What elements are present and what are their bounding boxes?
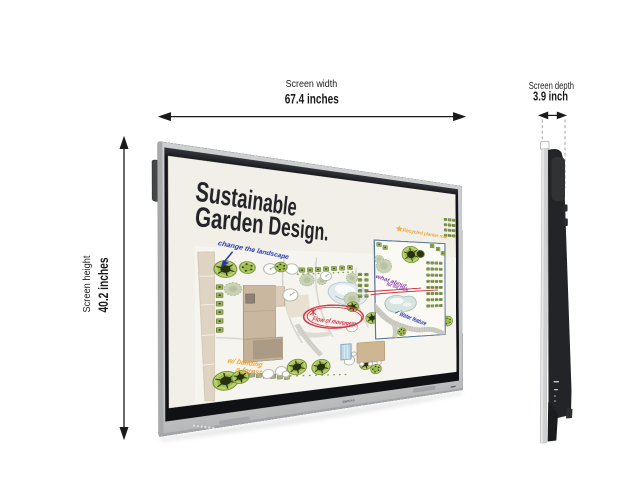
svg-text:Screen height: Screen height xyxy=(82,255,93,312)
svg-text:67.4 inches: 67.4 inches xyxy=(285,91,339,106)
svg-text:Screen width: Screen width xyxy=(286,79,338,90)
svg-text:3.9 inch: 3.9 inch xyxy=(533,90,568,104)
svg-text:40.2 inches: 40.2 inches xyxy=(96,258,111,313)
